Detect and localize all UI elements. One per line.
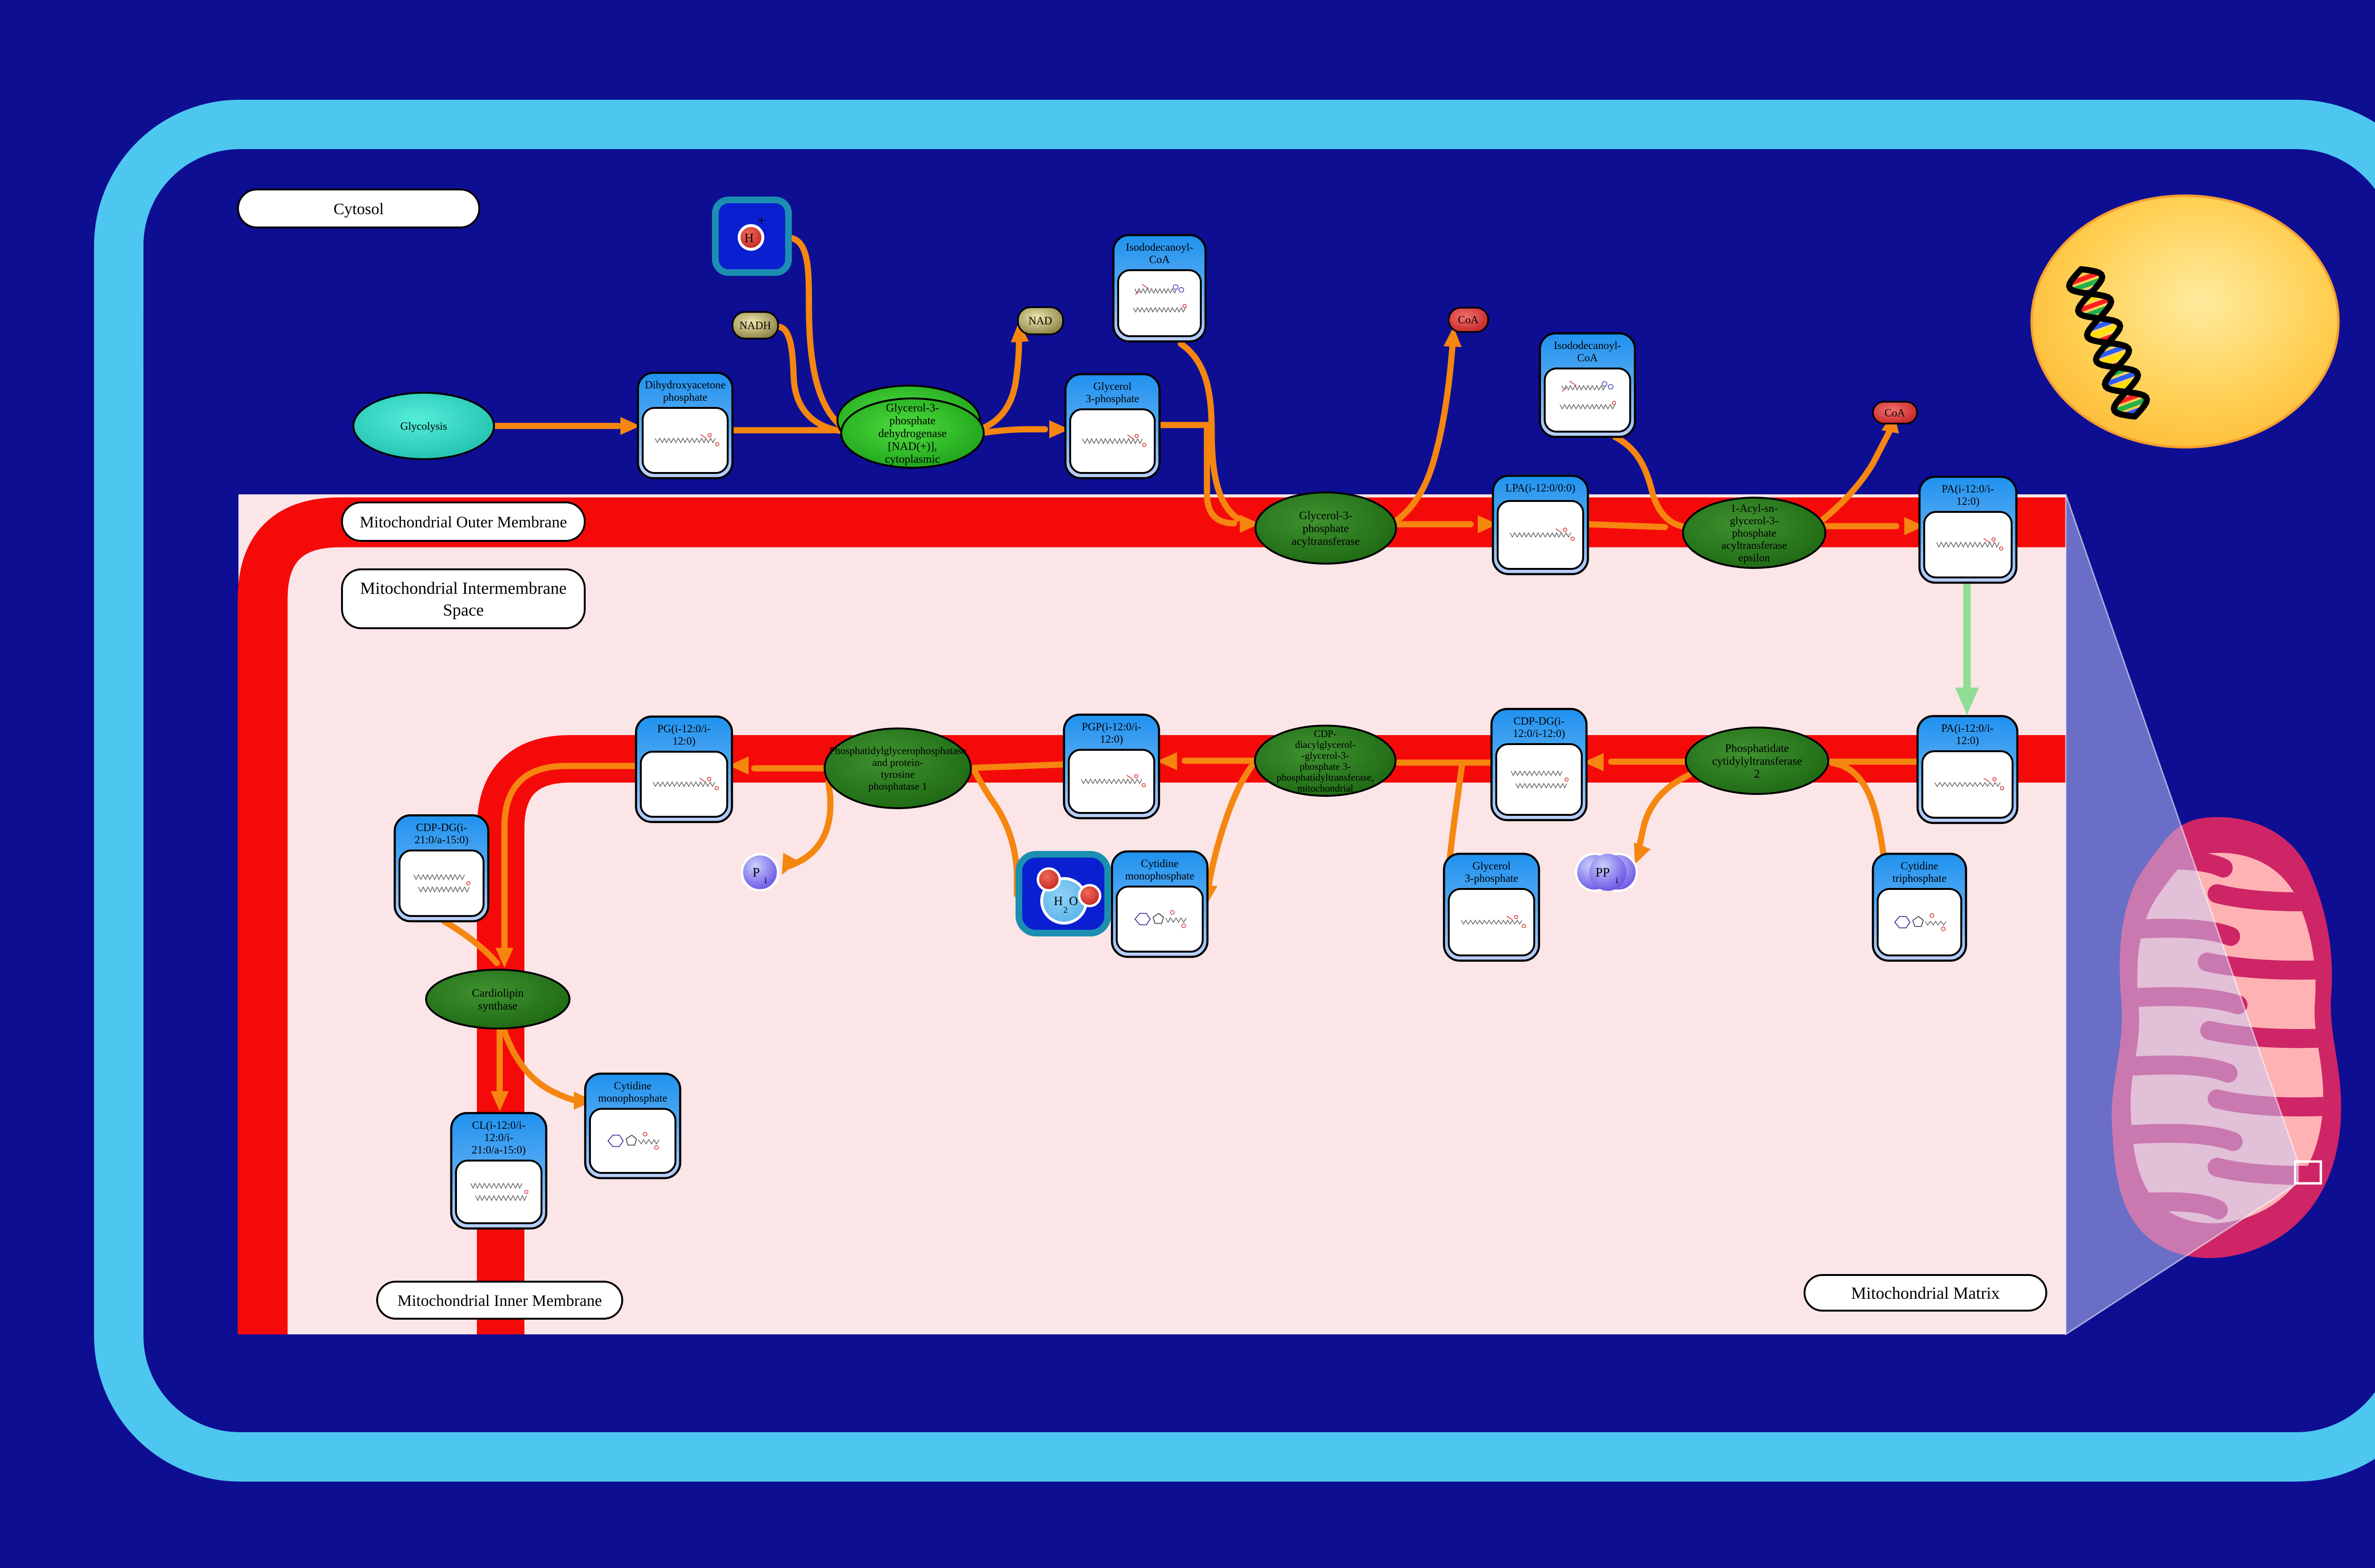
svg-text:phosphate: phosphate bbox=[889, 415, 935, 427]
svg-text:O: O bbox=[1069, 894, 1078, 908]
svg-text:monophosphate: monophosphate bbox=[598, 1092, 667, 1104]
svg-text:21:0/a-15:0): 21:0/a-15:0) bbox=[415, 834, 469, 846]
svg-text:Phosphatidate: Phosphatidate bbox=[1725, 742, 1789, 755]
svg-text:Phosphatidylglycerophosphatase: Phosphatidylglycerophosphatase bbox=[829, 745, 966, 756]
svg-text:phosphate: phosphate bbox=[663, 391, 707, 403]
svg-text:monophosphate: monophosphate bbox=[1125, 870, 1195, 882]
svg-text:12:0): 12:0) bbox=[1956, 735, 1979, 746]
svg-text:i: i bbox=[1615, 876, 1618, 886]
svg-text:LPA(i-12:0/0:0): LPA(i-12:0/0:0) bbox=[1505, 482, 1575, 494]
svg-text:3-phosphate: 3-phosphate bbox=[1465, 872, 1518, 884]
svg-text:CoA: CoA bbox=[1149, 254, 1170, 265]
svg-text:CDP-DG(i-: CDP-DG(i- bbox=[416, 822, 467, 833]
svg-text:3-phosphate: 3-phosphate bbox=[1086, 393, 1139, 405]
svg-text:Glycolysis: Glycolysis bbox=[400, 420, 447, 432]
svg-text:CL(i-12:0/i-: CL(i-12:0/i- bbox=[472, 1119, 525, 1131]
svg-text:CoA: CoA bbox=[1884, 407, 1905, 419]
svg-text:synthase: synthase bbox=[478, 1000, 518, 1012]
svg-text:Mitochondrial Matrix: Mitochondrial Matrix bbox=[1851, 1284, 2000, 1303]
svg-text:acyltransferase: acyltransferase bbox=[1721, 539, 1787, 551]
svg-text:-glycerol-3-: -glycerol-3- bbox=[1301, 750, 1349, 761]
svg-text:CDP-: CDP- bbox=[1314, 728, 1337, 739]
svg-text:phosphate: phosphate bbox=[1732, 527, 1776, 539]
svg-text:dehydrogenase: dehydrogenase bbox=[878, 427, 947, 440]
svg-text:tyrosine: tyrosine bbox=[881, 768, 915, 780]
svg-text:Mitochondrial Inner Membrane: Mitochondrial Inner Membrane bbox=[398, 1292, 602, 1310]
svg-text:Cytidine: Cytidine bbox=[1141, 858, 1178, 869]
svg-text:mitochondrial: mitochondrial bbox=[1297, 783, 1353, 794]
svg-text:Glycerol-3-: Glycerol-3- bbox=[886, 402, 939, 414]
svg-text:Glycerol: Glycerol bbox=[1093, 380, 1131, 392]
svg-text:12:0/i-: 12:0/i- bbox=[484, 1132, 513, 1143]
svg-text:Cytosol: Cytosol bbox=[333, 200, 384, 218]
svg-text:Dihydroxyacetone: Dihydroxyacetone bbox=[645, 379, 726, 391]
svg-text:i: i bbox=[764, 876, 767, 886]
svg-text:triphosphate: triphosphate bbox=[1892, 872, 1947, 884]
svg-text:21:0/a-15:0): 21:0/a-15:0) bbox=[472, 1144, 526, 1156]
svg-text:P: P bbox=[752, 865, 760, 879]
svg-text:2: 2 bbox=[1754, 768, 1760, 780]
svg-text:2: 2 bbox=[1064, 905, 1068, 915]
svg-text:H: H bbox=[1054, 894, 1063, 908]
svg-text:12:0): 12:0) bbox=[1957, 495, 1980, 507]
svg-text:Glycerol: Glycerol bbox=[1472, 860, 1510, 872]
svg-text:phosphatase 1: phosphatase 1 bbox=[868, 780, 927, 792]
svg-text:CDP-DG(i-: CDP-DG(i- bbox=[1513, 715, 1564, 727]
svg-text:PA(i-12:0/i-: PA(i-12:0/i- bbox=[1942, 483, 1994, 495]
svg-text:phosphate 3-: phosphate 3- bbox=[1300, 761, 1351, 772]
svg-text:[NAD(+)],: [NAD(+)], bbox=[888, 440, 937, 453]
svg-text:epsilon: epsilon bbox=[1738, 552, 1770, 564]
svg-text:PGP(i-12:0/i-: PGP(i-12:0/i- bbox=[1082, 721, 1141, 733]
svg-text:PA(i-12:0/i-: PA(i-12:0/i- bbox=[1941, 722, 1994, 734]
svg-text:Isododecanoyl-: Isododecanoyl- bbox=[1126, 241, 1193, 253]
svg-text:CoA: CoA bbox=[1577, 352, 1598, 364]
svg-text:H: H bbox=[744, 231, 754, 245]
svg-text:glycerol-3-: glycerol-3- bbox=[1730, 515, 1778, 527]
svg-text:phosphate: phosphate bbox=[1302, 522, 1349, 535]
svg-text:cytidylyltransferase: cytidylyltransferase bbox=[1712, 755, 1802, 767]
svg-text:12:0): 12:0) bbox=[673, 735, 696, 747]
svg-text:Glycerol-3-: Glycerol-3- bbox=[1299, 510, 1352, 522]
svg-text:12:0): 12:0) bbox=[1100, 733, 1123, 745]
svg-text:Cytidine: Cytidine bbox=[614, 1080, 651, 1092]
svg-text:acyltransferase: acyltransferase bbox=[1292, 535, 1360, 548]
svg-text:diacylglycerol-: diacylglycerol- bbox=[1295, 739, 1355, 750]
svg-text:Cardiolipin: Cardiolipin bbox=[472, 987, 523, 1000]
svg-text:Mitochondrial Intermembrane: Mitochondrial Intermembrane bbox=[360, 579, 567, 598]
svg-text:PP: PP bbox=[1596, 865, 1610, 879]
svg-text:Isododecanoyl-: Isododecanoyl- bbox=[1554, 340, 1621, 351]
svg-text:NAD: NAD bbox=[1028, 315, 1052, 327]
svg-text:12:0/i-12:0): 12:0/i-12:0) bbox=[1513, 727, 1565, 739]
svg-text:Space: Space bbox=[443, 601, 484, 620]
svg-text:Mitochondrial Outer Membrane: Mitochondrial Outer Membrane bbox=[360, 513, 567, 531]
svg-text:phosphatidyltransferase,: phosphatidyltransferase, bbox=[1277, 772, 1374, 783]
svg-text:PG(i-12:0/i-: PG(i-12:0/i- bbox=[657, 723, 711, 735]
svg-text:+: + bbox=[758, 213, 766, 228]
svg-text:CoA: CoA bbox=[1458, 314, 1479, 326]
svg-text:Cytidine: Cytidine bbox=[1900, 860, 1938, 872]
svg-text:and protein-: and protein- bbox=[873, 756, 923, 768]
svg-text:NADH: NADH bbox=[740, 320, 771, 331]
svg-text:cytoplasmic: cytoplasmic bbox=[885, 453, 940, 465]
svg-text:1-Acyl-sn-: 1-Acyl-sn- bbox=[1730, 502, 1778, 514]
